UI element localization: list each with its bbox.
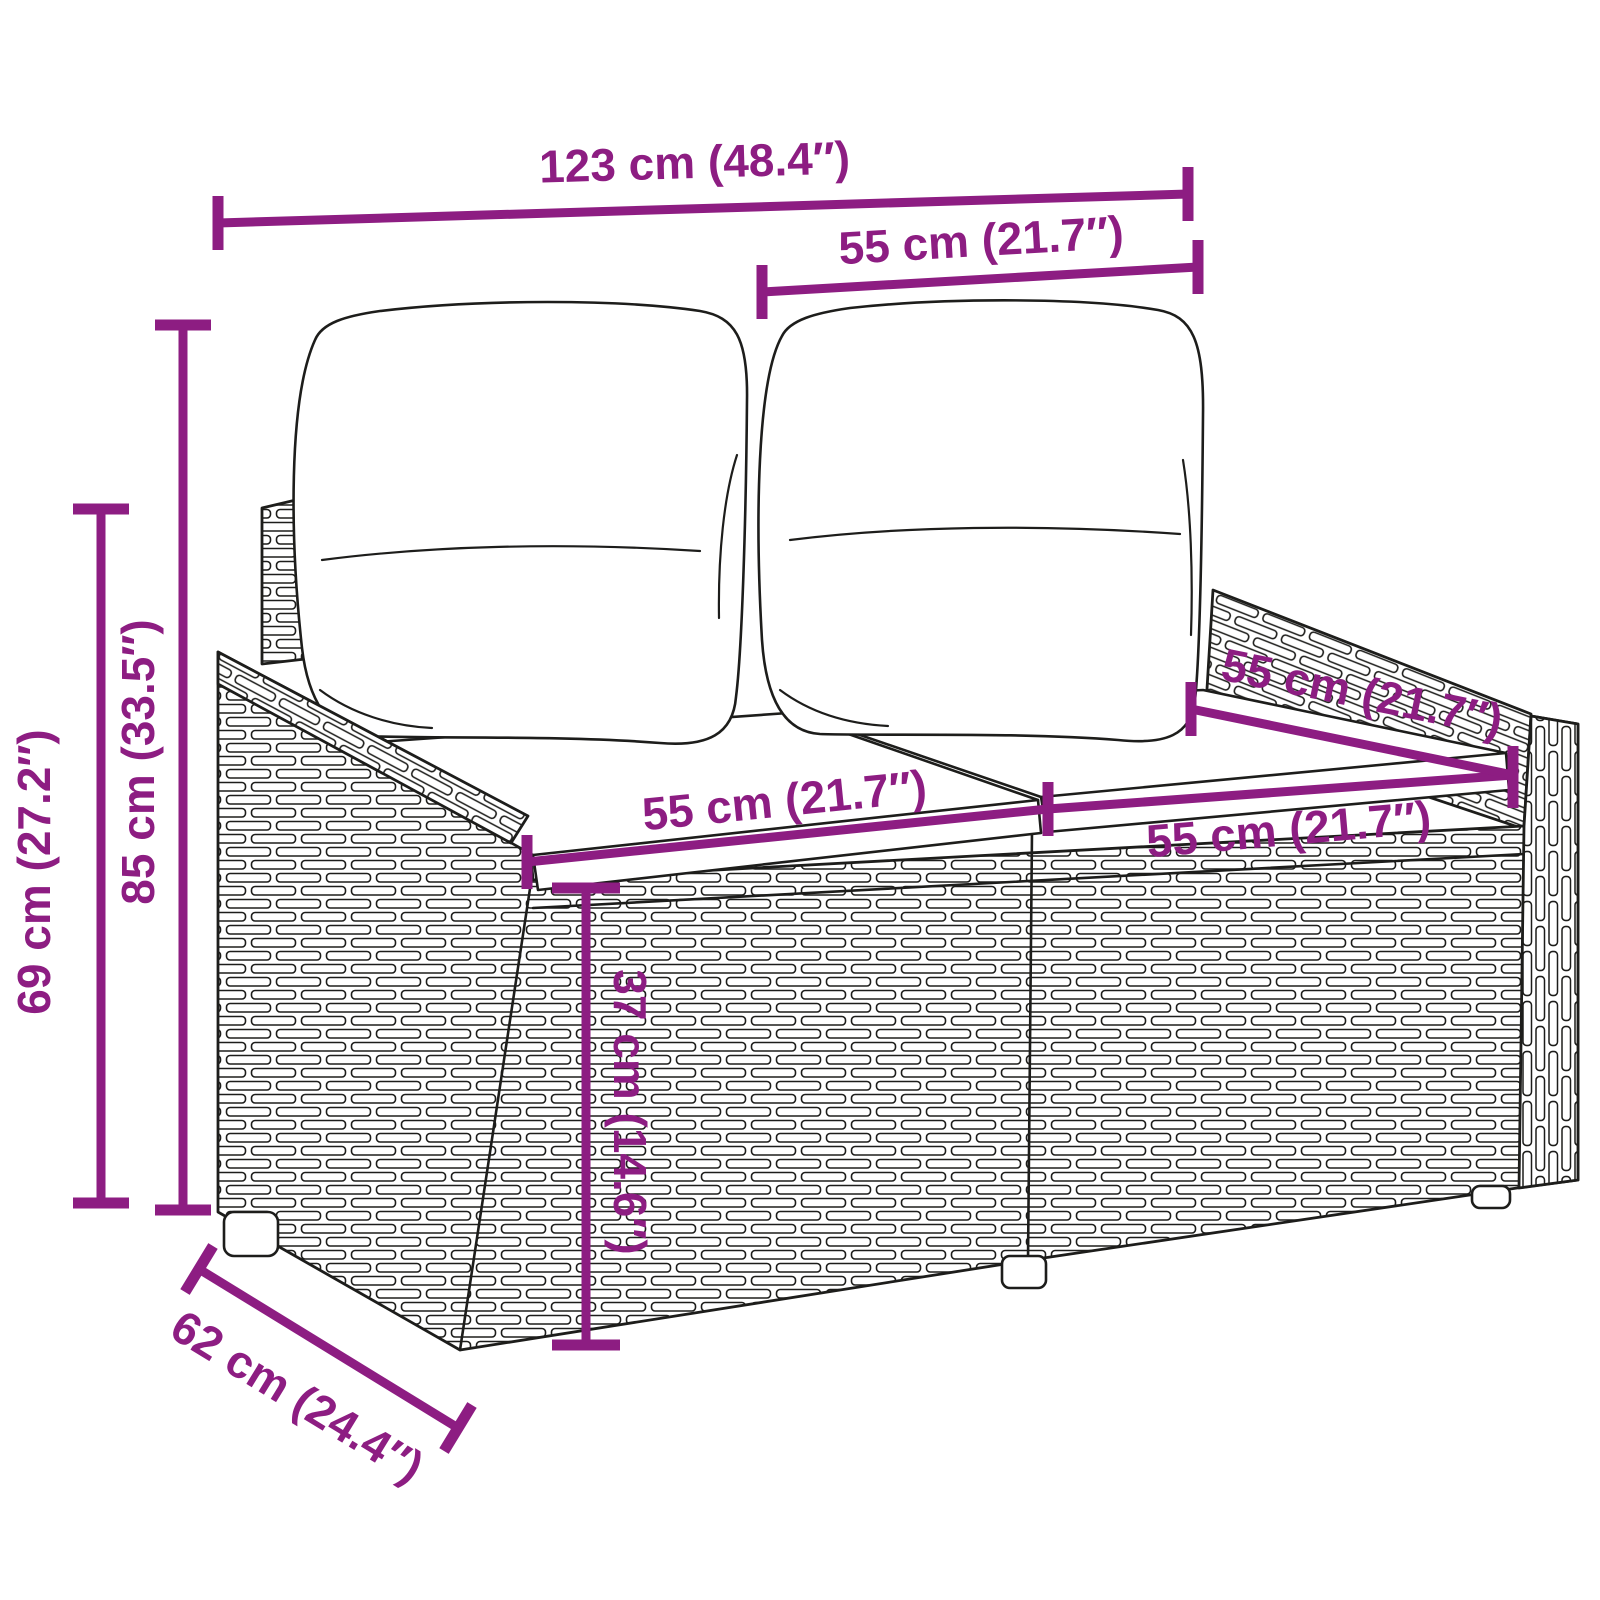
diagram-svg: 123 cm (48.4″) 55 cm (21.7″) 85 cm (33.5… bbox=[0, 0, 1600, 1600]
dimension-label-total-height: 85 cm (33.5″) bbox=[112, 619, 164, 904]
dimension-line bbox=[762, 267, 1198, 292]
dimension-label-back-cushion-width: 55 cm (21.7″) bbox=[837, 206, 1125, 274]
dimension-total-height: 85 cm (33.5″) bbox=[112, 325, 211, 1210]
dimension-label-seat-height: 37 cm (14.6″) bbox=[604, 969, 656, 1254]
foot-middle bbox=[1002, 1256, 1046, 1288]
right-front-post bbox=[1519, 716, 1578, 1188]
dimension-tick bbox=[185, 1246, 213, 1292]
dimension-frame-height: 69 cm (27.2″) bbox=[8, 509, 129, 1203]
dimension-tick bbox=[444, 1405, 472, 1451]
foot-left bbox=[224, 1212, 278, 1256]
back-cushion-right bbox=[759, 300, 1204, 741]
dimension-label-frame-height: 69 cm (27.2″) bbox=[8, 729, 60, 1014]
dimension-label-overall-width: 123 cm (48.4″) bbox=[538, 131, 850, 192]
dimension-diagram: 123 cm (48.4″) 55 cm (21.7″) 85 cm (33.5… bbox=[0, 0, 1600, 1600]
back-cushion-left bbox=[294, 302, 747, 744]
foot-right bbox=[1472, 1186, 1510, 1208]
